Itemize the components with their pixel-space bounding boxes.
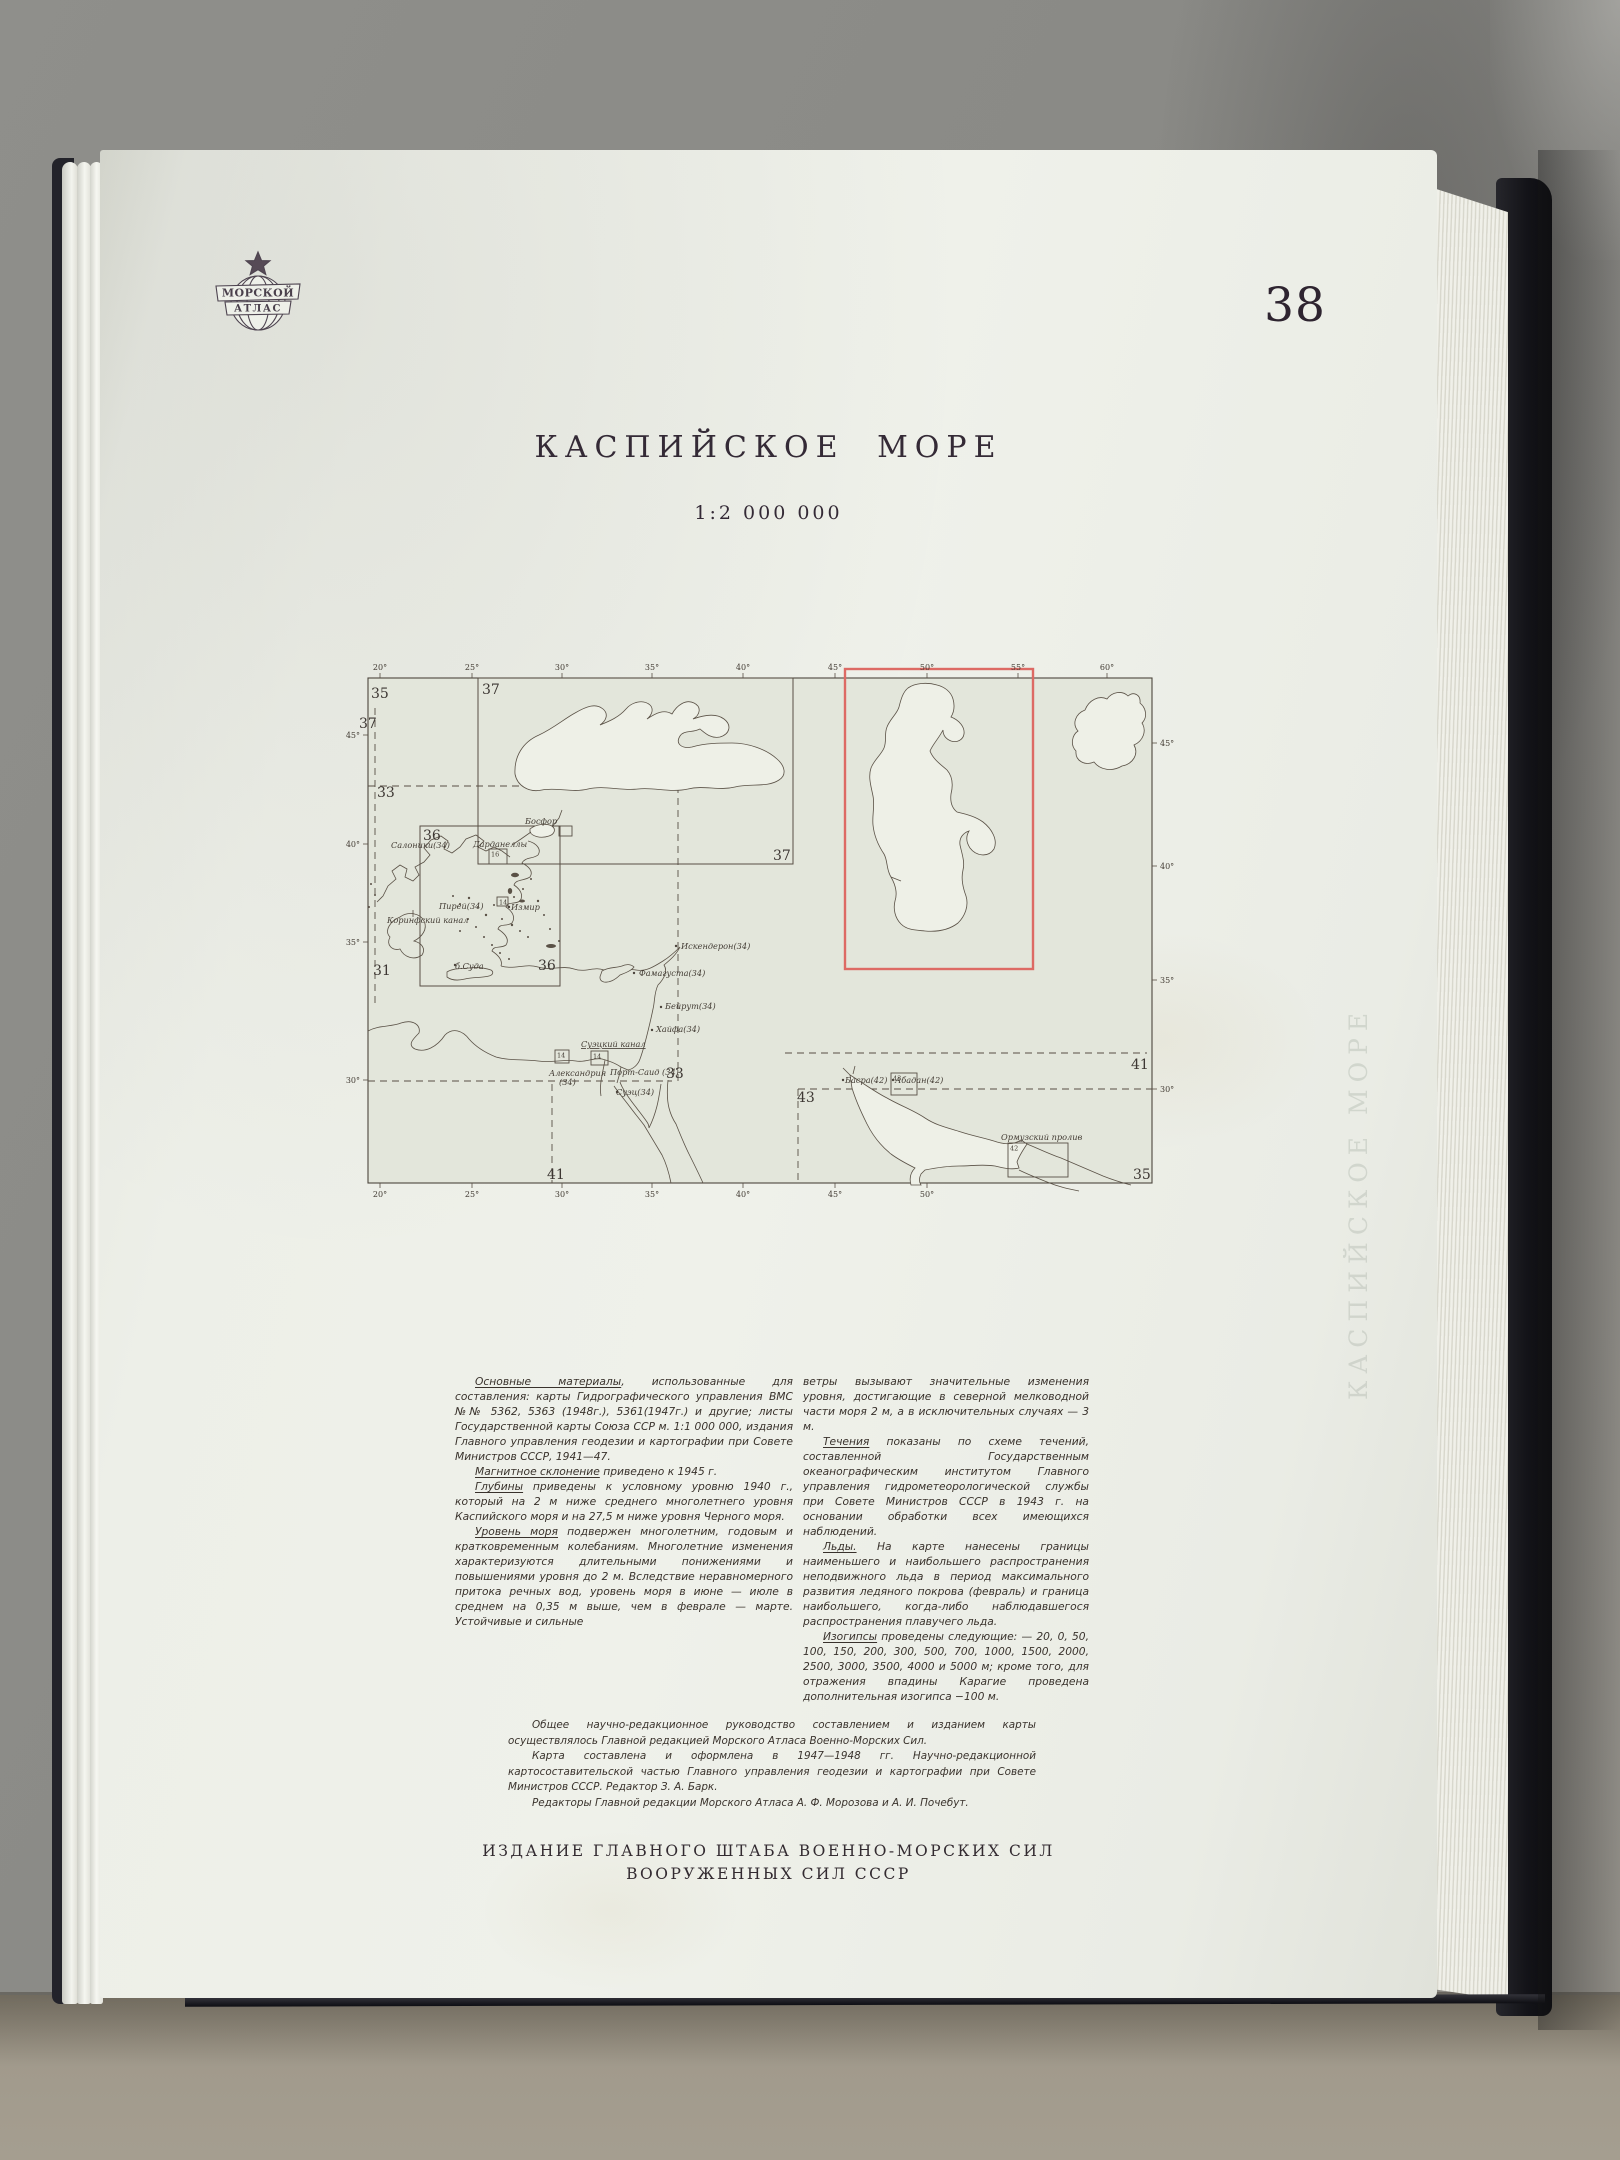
- svg-text:45°: 45°: [346, 731, 360, 740]
- svg-text:40°: 40°: [1160, 862, 1174, 871]
- source-notes: Основные материалы, использованные для с…: [100, 1374, 1437, 1624]
- note-paragraph: Уровень моря подвержен многолетним, годо…: [455, 1524, 793, 1629]
- note-paragraph: Основные материалы, использованные для с…: [455, 1374, 793, 1464]
- note-paragraph: Льды. На карте нанесены границы наименьш…: [803, 1539, 1089, 1629]
- svg-text:Босфор: Босфор: [524, 816, 558, 826]
- svg-text:(34): (34): [559, 1077, 576, 1087]
- svg-text:20°: 20°: [373, 1190, 387, 1199]
- svg-text:б.Суда: б.Суда: [455, 961, 484, 971]
- svg-text:35°: 35°: [1160, 976, 1174, 985]
- svg-text:45°: 45°: [828, 1190, 842, 1199]
- page-curl: [77, 162, 91, 2004]
- star-icon: [246, 252, 270, 275]
- svg-text:Хайфа(34): Хайфа(34): [655, 1024, 700, 1034]
- svg-text:40°: 40°: [346, 840, 360, 849]
- svg-text:35°: 35°: [645, 663, 659, 672]
- svg-text:35: 35: [1133, 1167, 1151, 1183]
- svg-text:41: 41: [547, 1167, 565, 1183]
- book-right-shadow: [1538, 150, 1620, 2030]
- svg-text:60°: 60°: [1100, 663, 1114, 672]
- notes-left-column: Основные материалы, использованные для с…: [455, 1374, 793, 1629]
- sea-of-marmara: [530, 824, 554, 837]
- editorial-block: Общее научно-редакционное руководство со…: [508, 1718, 1036, 1811]
- editorial-paragraph: Общее научно-редакционное руководство со…: [508, 1718, 1036, 1749]
- map-scale: 1:2 000 000: [100, 502, 1437, 524]
- svg-text:50°: 50°: [920, 1190, 934, 1199]
- svg-text:20°: 20°: [373, 663, 387, 672]
- naval-atlas-logo: МОРСКОЙ АТЛАС: [212, 250, 304, 340]
- svg-text:Измир: Измир: [510, 902, 541, 912]
- svg-text:Салоники(34): Салоники(34): [391, 840, 450, 850]
- imprint: ИЗДАНИЕ ГЛАВНОГО ШТАБА ВОЕННО-МОРСКИХ СИ…: [100, 1840, 1437, 1886]
- svg-text:30°: 30°: [346, 1076, 360, 1085]
- svg-text:35°: 35°: [645, 1190, 659, 1199]
- svg-text:43: 43: [797, 1090, 815, 1106]
- svg-text:42: 42: [1010, 1145, 1018, 1153]
- show-through-title: КАСПИЙСКОЕ МОРЕ: [1344, 930, 1373, 1400]
- svg-text:31: 31: [373, 963, 391, 979]
- svg-text:Бейрут(34): Бейрут(34): [664, 1001, 716, 1011]
- svg-text:Коринфский канал: Коринфский канал: [386, 915, 468, 925]
- svg-text:Пирей(34): Пирей(34): [438, 901, 484, 911]
- note-paragraph: Магнитное склонение приведено к 1945 г.: [455, 1464, 793, 1479]
- svg-text:35: 35: [371, 686, 389, 702]
- logo-text-line2: АТЛАС: [234, 304, 282, 315]
- note-paragraph: Глубины приведены к условному уровню 194…: [455, 1479, 793, 1524]
- note-paragraph: ветры вызывают значительные изменения ур…: [803, 1374, 1089, 1434]
- logo-text-line1: МОРСКОЙ: [222, 285, 294, 300]
- atlas-page: МОРСКОЙ АТЛАС 38 КАСПИЙСКОЕ МОРЕ 1:2 000…: [100, 150, 1437, 1998]
- svg-text:Суэцкий канал: Суэцкий канал: [581, 1039, 646, 1049]
- svg-text:14: 14: [557, 1052, 565, 1060]
- svg-text:36: 36: [538, 958, 556, 974]
- photo-of-atlas-page: МОРСКОЙ АТЛАС 38 КАСПИЙСКОЕ МОРЕ 1:2 000…: [0, 0, 1620, 2160]
- svg-text:35°: 35°: [346, 938, 360, 947]
- svg-text:37: 37: [359, 716, 377, 732]
- svg-text:Басра(42): Басра(42): [844, 1075, 887, 1085]
- svg-text:Искендерон(34): Искендерон(34): [680, 941, 750, 951]
- notes-right-column: ветры вызывают значительные изменения ур…: [803, 1374, 1089, 1704]
- note-paragraph: Изогипсы проведены следующие: — 20, 0, 5…: [803, 1629, 1089, 1704]
- index-map: 161414144342 20°25°30°35°40°45°50°55°60°…: [339, 658, 1165, 1206]
- svg-text:Дарданеллы: Дарданеллы: [472, 839, 528, 849]
- svg-text:33: 33: [377, 785, 395, 801]
- svg-text:30°: 30°: [555, 1190, 569, 1199]
- svg-text:Суэц(34): Суэц(34): [616, 1087, 654, 1097]
- svg-text:55°: 55°: [1011, 663, 1025, 672]
- page-curl: [62, 162, 78, 2004]
- imprint-line1: ИЗДАНИЕ ГЛАВНОГО ШТАБА ВОЕННО-МОРСКИХ СИ…: [100, 1840, 1437, 1863]
- svg-text:45°: 45°: [1160, 739, 1174, 748]
- svg-text:50°: 50°: [920, 663, 934, 672]
- svg-text:16: 16: [491, 851, 499, 859]
- editorial-paragraph: Редакторы Главной редакции Морского Атла…: [508, 1796, 1036, 1812]
- svg-text:14: 14: [499, 899, 507, 907]
- svg-text:Ормузский пролив: Ормузский пролив: [1001, 1132, 1083, 1142]
- imprint-line2: ВООРУЖЕННЫХ СИЛ СССР: [100, 1863, 1437, 1886]
- svg-text:Александрия: Александрия: [548, 1068, 606, 1078]
- svg-text:25°: 25°: [465, 1190, 479, 1199]
- page-title: КАСПИЙСКОЕ МОРЕ: [100, 430, 1437, 465]
- svg-text:45°: 45°: [828, 663, 842, 672]
- svg-text:37: 37: [482, 682, 500, 698]
- svg-text:Порт-Саид (34): Порт-Саид (34): [609, 1067, 679, 1077]
- page-number: 38: [1230, 278, 1360, 333]
- svg-text:Фамагуста(34): Фамагуста(34): [639, 968, 705, 978]
- editorial-paragraph: Карта составлена и оформлена в 1947—1948…: [508, 1749, 1036, 1796]
- svg-text:37: 37: [773, 848, 791, 864]
- svg-text:40°: 40°: [736, 1190, 750, 1199]
- svg-text:40°: 40°: [736, 663, 750, 672]
- svg-text:25°: 25°: [465, 663, 479, 672]
- svg-text:41: 41: [1131, 1057, 1149, 1073]
- svg-text:30°: 30°: [1160, 1085, 1174, 1094]
- svg-text:14: 14: [593, 1053, 601, 1061]
- svg-text:30°: 30°: [555, 663, 569, 672]
- page-stack-fore-edge: [1434, 168, 1508, 2004]
- note-paragraph: Течения показаны по схеме течений, соста…: [803, 1434, 1089, 1539]
- svg-text:Абадан(42): Абадан(42): [894, 1075, 943, 1085]
